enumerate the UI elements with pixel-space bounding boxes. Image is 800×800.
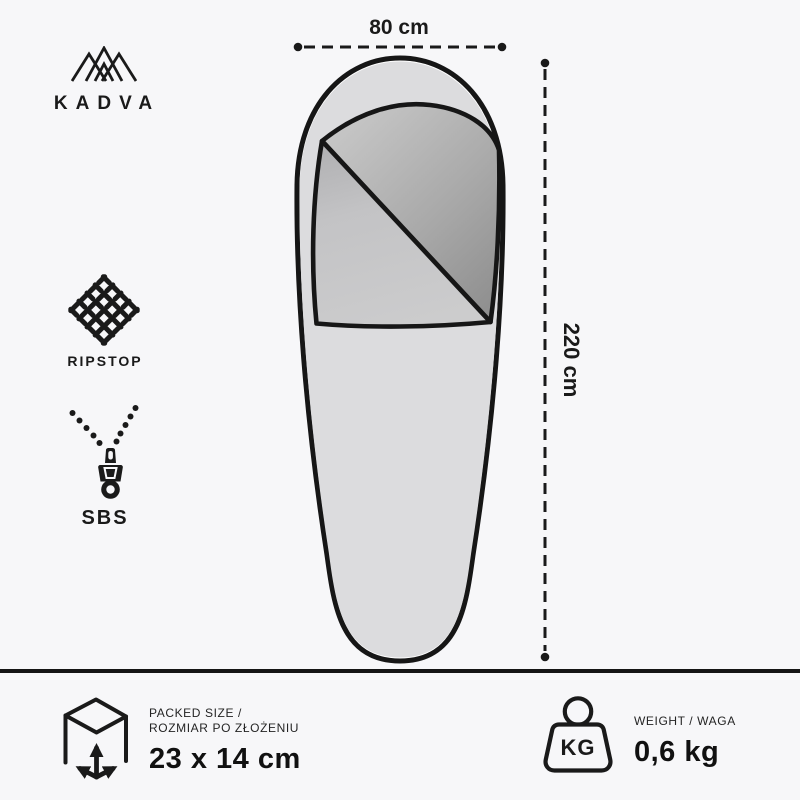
feature-sbs: SBS [40, 404, 168, 530]
feature-sbs-label: SBS [40, 507, 168, 530]
packed-size-value: 23 x 14 cm [149, 743, 301, 776]
feature-ripstop-label: RIPSTOP [40, 353, 168, 369]
footer-divider [0, 669, 800, 673]
length-dimension-line [537, 55, 553, 665]
mountain-logo-icon [71, 46, 137, 82]
width-dimension-label: 80 cm [299, 16, 499, 40]
feature-ripstop: RIPSTOP [40, 272, 168, 369]
weight-kettlebell-icon: KG [539, 694, 617, 786]
packed-size-text: PACKED SIZE / ROZMIAR PO ZŁOŻENIU 23 x 1… [149, 696, 301, 776]
length-dimension-label: 220 cm [558, 323, 584, 398]
weight-title: WEIGHT / WAGA [634, 714, 736, 729]
packed-size-title-line1: PACKED SIZE / [149, 706, 301, 721]
packed-size-spec: PACKED SIZE / ROZMIAR PO ZŁOŻENIU 23 x 1… [61, 696, 301, 788]
packed-size-cube-icon [61, 696, 129, 788]
ripstop-weave-icon [67, 272, 141, 348]
weight-text: WEIGHT / WAGA 0,6 kg [634, 694, 736, 769]
zipper-icon [69, 404, 139, 500]
sleeping-bag-illustration [270, 50, 530, 670]
brand-logo: KADVA [40, 46, 168, 115]
brand-name: KADVA [40, 93, 168, 115]
infographic-canvas: KADVA RIPSTOP [0, 0, 800, 800]
weight-spec: KG WEIGHT / WAGA 0,6 kg [539, 694, 736, 786]
packed-size-title-line2: ROZMIAR PO ZŁOŻENIU [149, 721, 301, 736]
kg-icon-label: KG [561, 735, 596, 760]
weight-value: 0,6 kg [634, 736, 736, 769]
